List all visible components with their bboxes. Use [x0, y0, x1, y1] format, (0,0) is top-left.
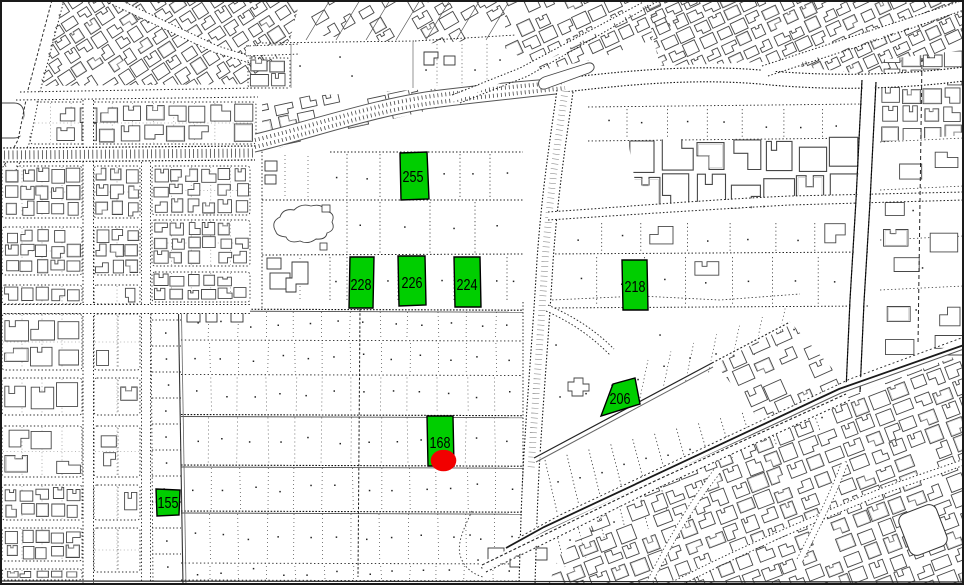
svg-text:226: 226 [402, 275, 423, 292]
svg-text:206: 206 [610, 391, 631, 408]
svg-text:168: 168 [430, 435, 451, 452]
svg-text:155: 155 [158, 495, 179, 512]
svg-text:218: 218 [625, 279, 646, 296]
svg-text:255: 255 [403, 169, 424, 186]
svg-text:224: 224 [457, 277, 478, 294]
svg-text:228: 228 [351, 277, 372, 294]
